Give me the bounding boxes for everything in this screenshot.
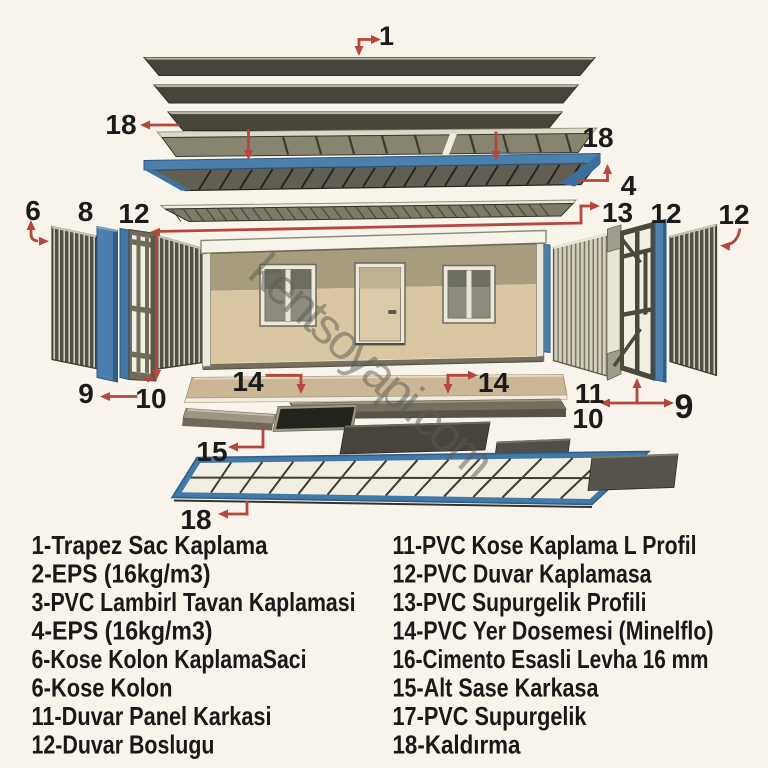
svg-text:13-PVC Supurgelik Profili: 13-PVC Supurgelik Profili	[393, 587, 647, 617]
svg-text:13: 13	[602, 197, 633, 228]
svg-text:18-Kaldırma: 18-Kaldırma	[393, 730, 521, 760]
svg-text:15-Alt Sase Karkasa: 15-Alt Sase Karkasa	[393, 673, 599, 703]
svg-text:8: 8	[78, 196, 94, 227]
svg-text:1-Trapez Sac Kaplama: 1-Trapez Sac Kaplama	[32, 530, 268, 560]
svg-text:15: 15	[196, 436, 227, 467]
svg-text:6-Kose Kolon KaplamaSaci: 6-Kose Kolon KaplamaSaci	[32, 644, 307, 674]
svg-text:14: 14	[232, 366, 264, 397]
svg-text:3-PVC Lambirl Tavan Kaplamasi: 3-PVC Lambirl Tavan Kaplamasi	[32, 587, 356, 617]
svg-text:14-PVC Yer Dosemesi (Minelflo): 14-PVC Yer Dosemesi (Minelflo)	[393, 616, 714, 646]
svg-text:12-PVC Duvar Kaplamasa: 12-PVC Duvar Kaplamasa	[393, 559, 652, 589]
svg-text:6: 6	[25, 195, 41, 226]
svg-text:18: 18	[582, 122, 613, 153]
svg-text:9: 9	[675, 388, 694, 426]
svg-text:12-Duvar Boslugu: 12-Duvar Boslugu	[32, 730, 215, 760]
svg-text:6-Kose Kolon: 6-Kose Kolon	[32, 673, 173, 703]
svg-text:11-PVC Kose Kaplama L Profil: 11-PVC Kose Kaplama L Profil	[393, 530, 697, 560]
svg-text:12: 12	[118, 198, 149, 229]
svg-text:9: 9	[78, 378, 94, 409]
svg-text:10: 10	[135, 383, 166, 414]
svg-text:1: 1	[379, 21, 394, 51]
svg-text:10: 10	[572, 403, 603, 434]
svg-text:12: 12	[650, 198, 681, 229]
svg-text:12: 12	[718, 199, 749, 230]
svg-text:2-EPS (16kg/m3): 2-EPS (16kg/m3)	[32, 559, 211, 589]
svg-text:17-PVC Supurgelik: 17-PVC Supurgelik	[393, 701, 587, 731]
svg-text:16-Cimento Esasli Levha 16 mm: 16-Cimento Esasli Levha 16 mm	[393, 644, 709, 674]
svg-text:11-Duvar Panel Karkasi: 11-Duvar Panel Karkasi	[32, 701, 272, 731]
svg-text:18: 18	[105, 109, 136, 140]
svg-text:14: 14	[478, 367, 510, 398]
svg-text:4-EPS (16kg/m3): 4-EPS (16kg/m3)	[32, 616, 213, 646]
